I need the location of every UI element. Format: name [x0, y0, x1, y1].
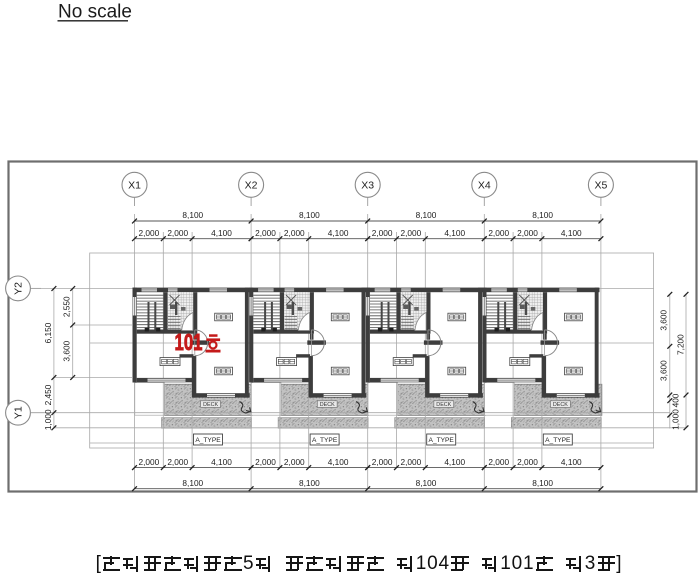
svg-text:2,000: 2,000 [139, 228, 160, 238]
svg-text:4,100: 4,100 [561, 228, 582, 238]
svg-text:DECK: DECK [320, 402, 335, 408]
svg-text:4,100: 4,100 [444, 228, 465, 238]
svg-text:2,000: 2,000 [372, 228, 393, 238]
svg-text:8,100: 8,100 [182, 478, 203, 488]
svg-text:400: 400 [671, 393, 681, 407]
svg-text:2,000: 2,000 [167, 457, 188, 467]
svg-text:3,600: 3,600 [659, 360, 669, 381]
svg-text:2,000: 2,000 [488, 228, 509, 238]
svg-text:4,100: 4,100 [328, 457, 349, 467]
svg-text:2,000: 2,000 [255, 228, 276, 238]
svg-text:A_TYPE: A_TYPE [195, 437, 221, 444]
svg-text:8,100: 8,100 [299, 478, 320, 488]
svg-text:2,000: 2,000 [255, 457, 276, 467]
svg-text:8,100: 8,100 [532, 210, 553, 220]
svg-text:Y1: Y1 [13, 406, 25, 419]
svg-text:X4: X4 [478, 179, 491, 191]
svg-text:1,000: 1,000 [671, 409, 681, 430]
svg-text:1,000: 1,000 [43, 409, 53, 430]
svg-text:No scale: No scale [58, 2, 132, 23]
svg-text:2,000: 2,000 [284, 457, 305, 467]
svg-text:4,100: 4,100 [328, 228, 349, 238]
svg-text:2,000: 2,000 [517, 457, 538, 467]
svg-text:8,100: 8,100 [532, 478, 553, 488]
svg-text:6,150: 6,150 [43, 322, 53, 343]
svg-text:8,100: 8,100 [416, 478, 437, 488]
svg-text:DECK: DECK [436, 402, 451, 408]
svg-text:2,000: 2,000 [284, 228, 305, 238]
svg-text:A_TYPE: A_TYPE [545, 437, 571, 444]
svg-text:2,000: 2,000 [401, 228, 422, 238]
svg-text:2,000: 2,000 [517, 228, 538, 238]
svg-text:DECK: DECK [203, 402, 218, 408]
svg-text:DECK: DECK [553, 402, 568, 408]
svg-text:2,550: 2,550 [62, 296, 72, 317]
svg-text:2,000: 2,000 [401, 457, 422, 467]
svg-text:A_TYPE: A_TYPE [429, 437, 455, 444]
svg-text:X1: X1 [128, 179, 141, 191]
svg-text:2,000: 2,000 [372, 457, 393, 467]
svg-text:3,600: 3,600 [659, 310, 669, 331]
svg-text:X5: X5 [594, 179, 607, 191]
svg-text:A_TYPE: A_TYPE [312, 437, 338, 444]
svg-text:2,000: 2,000 [488, 457, 509, 467]
svg-text:2,000: 2,000 [139, 457, 160, 467]
svg-text:X3: X3 [361, 179, 374, 191]
svg-text:8,100: 8,100 [416, 210, 437, 220]
svg-text:7,200: 7,200 [676, 334, 686, 355]
svg-text:4,100: 4,100 [561, 457, 582, 467]
svg-text:4,100: 4,100 [211, 457, 232, 467]
svg-text:4,100: 4,100 [211, 228, 232, 238]
svg-text:8,100: 8,100 [182, 210, 203, 220]
svg-text:101: 101 [175, 329, 203, 355]
svg-text:4,100: 4,100 [444, 457, 465, 467]
svg-text:Y2: Y2 [13, 282, 25, 295]
svg-text:2,450: 2,450 [43, 384, 53, 405]
svg-text:2,000: 2,000 [167, 228, 188, 238]
svg-text:X2: X2 [245, 179, 258, 191]
svg-text:8,100: 8,100 [299, 210, 320, 220]
svg-text:3,600: 3,600 [62, 340, 72, 361]
